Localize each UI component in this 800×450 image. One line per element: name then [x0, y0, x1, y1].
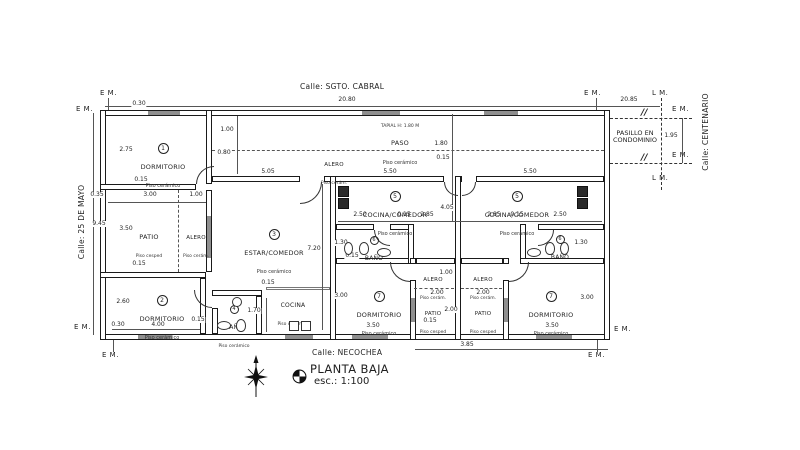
- toilet-icon: [359, 242, 369, 255]
- room-estar-comedor: 3 ESTAR/COMEDOR Piso cerámico: [228, 222, 320, 278]
- dim-label: 0.30: [131, 101, 146, 107]
- marker-em: E M.: [672, 152, 689, 159]
- tapial-note: TAPIAL H: 1.80 M: [381, 124, 419, 129]
- bidet-icon: [344, 242, 353, 255]
- room-dormitorio-1: 1 DORMITORIO Piso cerámico: [118, 136, 208, 192]
- area-alero-c: ALERO Piso cerám.: [461, 267, 505, 304]
- wall-outer-right: [604, 110, 610, 340]
- kitchen-counter: [266, 287, 330, 290]
- marker-em: E M.: [672, 106, 689, 113]
- wall: [212, 176, 300, 182]
- room-dormitorio-2: 2 DORMITORIO Piso cerámico: [116, 288, 208, 344]
- break-mark: //: [641, 154, 648, 163]
- marker-em: E M.: [614, 326, 631, 333]
- street-label-left: Calle: 25 DE MAYO: [78, 142, 86, 302]
- dimension-tick: [108, 98, 109, 110]
- marker-em: E M.: [584, 90, 601, 97]
- room-number: 7: [374, 291, 385, 302]
- room-number: 1: [158, 143, 169, 154]
- dim-label: 0.35: [89, 192, 104, 198]
- break-mark: //: [641, 109, 648, 118]
- dim-label: 5.05: [260, 169, 275, 175]
- marker-em: E M.: [76, 106, 93, 113]
- dim-label: 20.85: [619, 97, 638, 103]
- room-number: 7: [546, 291, 557, 302]
- dim-label: 0.15: [131, 261, 146, 267]
- stove-icon: [577, 186, 588, 197]
- room-number: 3: [269, 229, 280, 240]
- wall: [476, 176, 604, 182]
- dim-label: 1.95: [663, 133, 678, 139]
- street-label-top: Calle: SGTO. CABRAL: [300, 83, 384, 91]
- appliance-icon: [301, 321, 311, 331]
- dim-label: 1.00: [188, 192, 203, 198]
- wall: [416, 258, 455, 264]
- dim-label: 1.00: [219, 127, 234, 133]
- room-number: 5: [512, 191, 523, 202]
- marker-em: E M.: [74, 324, 91, 331]
- sink-icon: [217, 321, 231, 330]
- wall: [461, 258, 503, 264]
- sink-icon: [377, 248, 391, 257]
- corridor-label: PASILLO EN CONDOMINIO: [598, 130, 672, 144]
- dimension-line: [415, 349, 608, 350]
- area-alero-a: ALERO Piso cerám.: [168, 225, 224, 262]
- marker-em: E M.: [102, 352, 119, 359]
- dimension-line: [602, 106, 660, 107]
- bidet-icon: [560, 242, 569, 255]
- dim-label: 5.50: [382, 169, 397, 175]
- dimension-line: [105, 106, 602, 107]
- dim-label: 9.45: [91, 221, 106, 227]
- property-line: [610, 163, 692, 164]
- street-label-bottom: Calle: NECOCHEA: [312, 349, 382, 357]
- marker-em: E M.: [100, 90, 117, 97]
- sink-icon: [527, 248, 541, 257]
- dimension-line: [237, 116, 238, 174]
- washbasin-icon: [232, 297, 242, 307]
- marker-lm: L M.: [652, 90, 668, 97]
- room-number: 5: [390, 191, 401, 202]
- room-dormitorio-7c: 7 DORMITORIO Piso cerámico: [506, 284, 596, 340]
- toilet-icon: [236, 319, 246, 332]
- dim-label: 0.80: [216, 150, 231, 156]
- section-marker-icon: [292, 369, 307, 388]
- stove-icon: [338, 186, 349, 197]
- dim-label: 3.85: [459, 342, 474, 348]
- room-number: 2: [157, 295, 168, 306]
- appliance-icon: [289, 321, 299, 331]
- compass-rose: [237, 355, 275, 403]
- sink-icon: [577, 198, 588, 209]
- area-patio-b: PATIO Piso cesped: [411, 301, 455, 338]
- toilet-icon: [545, 242, 555, 255]
- window: [285, 335, 313, 339]
- marker-em: E M.: [588, 352, 605, 359]
- area-alero-b: ALERO Piso cerám.: [411, 267, 455, 304]
- window: [148, 111, 180, 115]
- marker-lm: L M.: [652, 175, 668, 182]
- plan-scale: esc.: 1:100: [314, 377, 369, 388]
- area-patio-c: PATIO Piso cesped: [461, 301, 505, 338]
- floor-plan-canvas: Calle: SGTO. CABRAL Calle: NECOCHEA Call…: [0, 0, 800, 450]
- wall: [100, 272, 206, 278]
- street-label-right: Calle: CENTENARIO: [702, 52, 710, 212]
- room-number: 6: [370, 236, 379, 245]
- door-arc: [390, 262, 410, 282]
- sink-icon: [338, 198, 349, 209]
- dim-label: 0.15: [260, 280, 275, 286]
- property-line: [610, 118, 692, 119]
- dim-label: 20.80: [337, 97, 356, 103]
- dimension-line: [108, 202, 206, 203]
- dim-label: 5.50: [522, 169, 537, 175]
- dimension-tick: [596, 98, 597, 110]
- plan-title: PLANTA BAJA: [310, 363, 389, 375]
- window: [484, 111, 518, 115]
- dim-label: 3.00: [142, 192, 157, 198]
- door-arc: [509, 262, 529, 282]
